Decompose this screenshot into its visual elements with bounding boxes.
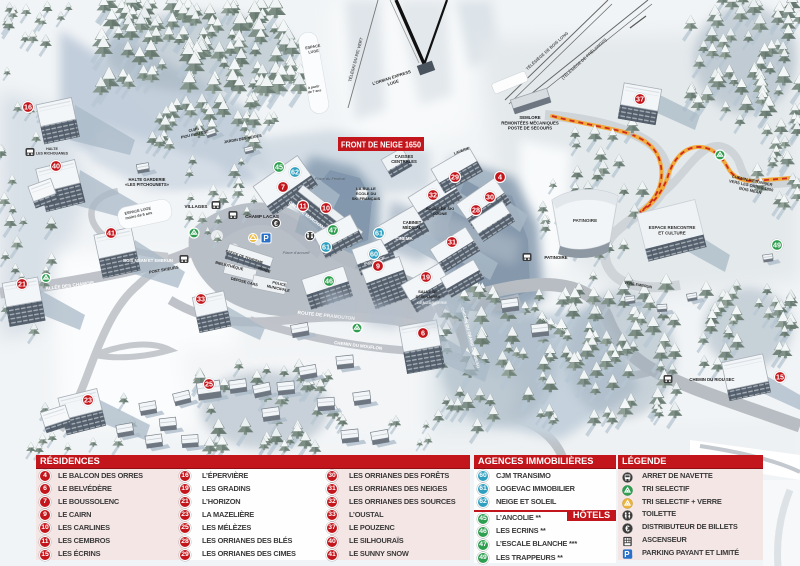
svg-text:29: 29 <box>451 173 459 182</box>
svg-text:CINÉMA: CINÉMA <box>395 236 413 241</box>
svg-text:47: 47 <box>329 226 337 235</box>
svg-text:37: 37 <box>636 95 644 104</box>
svg-text:62: 62 <box>291 168 299 177</box>
svg-text:30: 30 <box>486 193 494 202</box>
svg-text:21: 21 <box>18 280 26 289</box>
svg-text:49: 49 <box>773 241 781 250</box>
svg-text:31: 31 <box>448 238 456 247</box>
svg-text:CHAMP LACAS: CHAMP LACAS <box>245 214 279 219</box>
svg-text:23: 23 <box>84 396 92 405</box>
svg-text:PATINOIRE: PATINOIRE <box>544 255 567 260</box>
svg-text:60: 60 <box>370 250 378 259</box>
svg-text:PATINOIRE: PATINOIRE <box>573 218 597 223</box>
svg-text:CHEMIN DU RIOU SEC: CHEMIN DU RIOU SEC <box>689 377 734 382</box>
svg-text:€: € <box>274 221 278 228</box>
svg-text:FRONT DE NEIGE 1650: FRONT DE NEIGE 1650 <box>341 141 421 150</box>
svg-text:11: 11 <box>299 202 307 211</box>
svg-text:61: 61 <box>322 243 330 252</box>
svg-text:9: 9 <box>376 262 380 271</box>
svg-text:Place d’accueil: Place d’accueil <box>283 250 310 255</box>
svg-text:Ⓟ: Ⓟ <box>629 555 633 560</box>
svg-text:32: 32 <box>429 191 437 200</box>
svg-text:VILLAGES: VILLAGES <box>185 204 208 209</box>
svg-text:33: 33 <box>197 295 205 304</box>
svg-text:P: P <box>263 234 269 243</box>
svg-text:28: 28 <box>472 206 480 215</box>
svg-text:61: 61 <box>375 229 383 238</box>
svg-text:40: 40 <box>52 162 60 171</box>
svg-text:BOIS MÉAN ET EMBRUN: BOIS MÉAN ET EMBRUN <box>123 258 173 263</box>
svg-text:10: 10 <box>322 204 330 213</box>
svg-text:SALLE DESÉMINAIRES: SALLE DESÉMINAIRES <box>416 289 441 299</box>
svg-text:19: 19 <box>422 273 430 282</box>
svg-text:7: 7 <box>281 183 285 192</box>
svg-text:16: 16 <box>24 103 32 112</box>
svg-text:HALTE GARDERIE«LES PITCHOUNETS: HALTE GARDERIE«LES PITCHOUNETS» <box>125 177 170 187</box>
svg-text:46: 46 <box>325 277 333 286</box>
svg-text:Place du Festival: Place du Festival <box>315 176 346 181</box>
svg-text:CABINETMÉDICAL: CABINETMÉDICAL <box>402 220 422 230</box>
svg-text:15: 15 <box>776 373 784 382</box>
svg-text:CAISSESCENTRALES: CAISSESCENTRALES <box>391 154 417 164</box>
svg-text:4: 4 <box>498 173 502 182</box>
svg-text:25: 25 <box>205 380 213 389</box>
svg-text:6: 6 <box>421 329 425 338</box>
svg-text:45: 45 <box>275 163 283 172</box>
svg-text:41: 41 <box>107 229 115 238</box>
svg-text:€: € <box>625 524 630 533</box>
